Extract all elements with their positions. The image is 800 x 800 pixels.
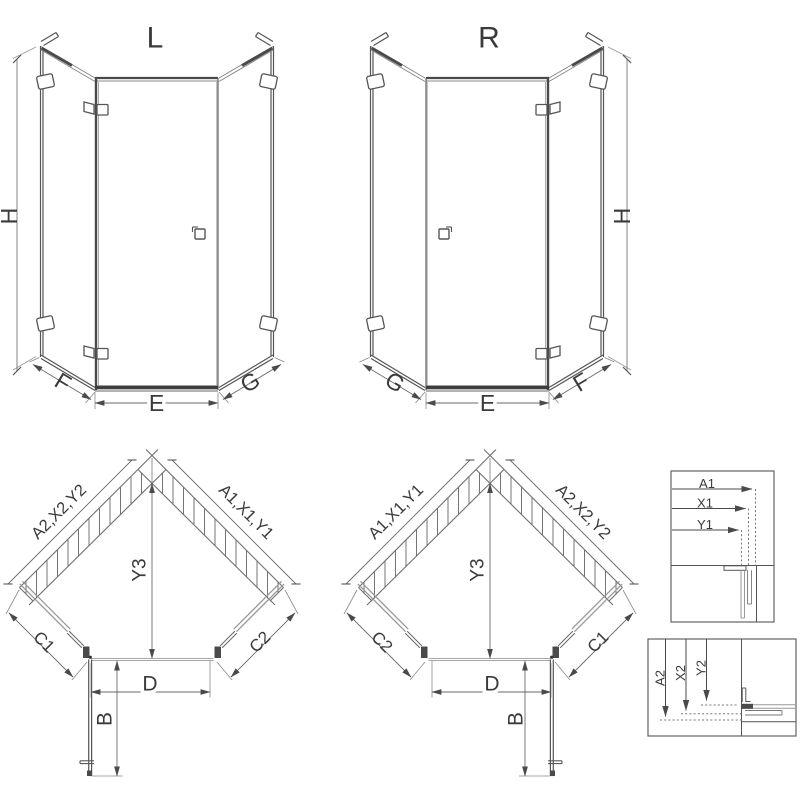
plan-right-c1-label: C1 (584, 628, 613, 657)
detail-top-x1-label: X1 (697, 496, 713, 511)
detail-top-y1-label: Y1 (697, 517, 713, 532)
front-left-e-label: E (149, 390, 164, 416)
detail-bottom-y2-label: Y2 (694, 660, 709, 676)
plan-right-c2-label: C2 (368, 628, 397, 657)
plan-left-d-label: D (142, 673, 157, 696)
detail-panel-bottom: A2 X2 Y2 (648, 639, 796, 736)
plan-view-right: A1,X1,Y1 A2,X2,Y2 Y3 C2 C1 D B (342, 450, 639, 777)
front-view-left: L H F E G (0, 22, 285, 417)
front-right-e-label: E (480, 390, 495, 416)
front-right-title: R (478, 22, 500, 55)
front-left-title: L (147, 22, 164, 55)
shower-enclosure-technical-drawing: L H F E G R H G E F A2,X2,Y2 A1,X1,Y1 Y3… (0, 0, 800, 800)
front-right-f-label: F (568, 367, 593, 397)
front-right-height-label: H (609, 208, 635, 225)
plan-left-c1-label: C1 (30, 628, 59, 657)
front-view-right: R H G E F (360, 22, 636, 417)
front-left-g-label: G (236, 366, 265, 398)
plan-left-c2-label: C2 (246, 628, 275, 657)
plan-left-b-label: B (94, 712, 117, 726)
plan-view-left: A2,X2,Y2 A1,X1,Y1 Y3 C1 C2 D B (4, 450, 301, 777)
plan-right-b-label: B (505, 712, 528, 726)
plan-left-y3-label: Y3 (130, 558, 151, 581)
plan-right-d-label: D (484, 673, 499, 696)
front-left-height-label: H (0, 208, 22, 225)
plan-right-y3-label: Y3 (468, 558, 489, 581)
detail-panel-top: A1 X1 Y1 (671, 471, 774, 622)
front-right-g-label: G (381, 366, 410, 398)
detail-bottom-x2-label: X2 (673, 665, 688, 681)
detail-top-a1-label: A1 (699, 476, 715, 491)
drawing-canvas: L H F E G R H G E F A2,X2,Y2 A1,X1,Y1 Y3… (0, 0, 800, 800)
front-left-f-label: F (50, 367, 75, 397)
detail-bottom-a2-label: A2 (653, 670, 668, 686)
